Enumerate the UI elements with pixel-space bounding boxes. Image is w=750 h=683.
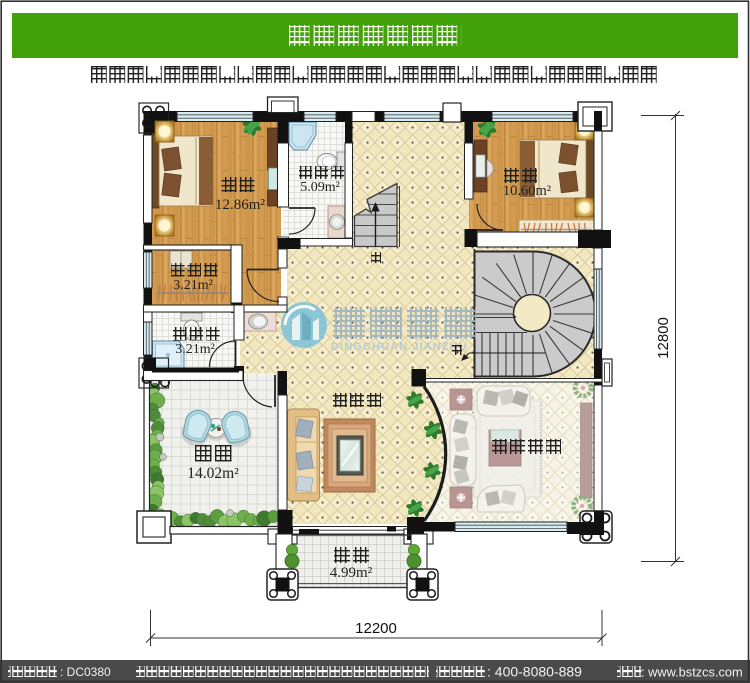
svg-text:5.09m²: 5.09m² (300, 180, 340, 195)
svg-text:12200: 12200 (355, 620, 397, 637)
svg-text:: www.bstzcs.com: : www.bstzcs.com (641, 665, 743, 680)
svg-text:12800: 12800 (655, 317, 672, 359)
svg-text:3.21m²: 3.21m² (175, 342, 215, 357)
svg-text:: 400-8080-889: : 400-8080-889 (487, 664, 582, 680)
svg-text:: DC0380: : DC0380 (60, 665, 111, 679)
svg-text:3.21m²: 3.21m² (173, 278, 213, 293)
svg-text:12.86m²: 12.86m² (215, 197, 265, 213)
svg-text:4.99m²: 4.99m² (330, 565, 373, 581)
svg-text:DINGCHUAN JIANZHU: DINGCHUAN JIANZHU (331, 341, 468, 353)
svg-text:10.60m²: 10.60m² (503, 183, 552, 199)
svg-text:14.02m²: 14.02m² (187, 465, 239, 482)
